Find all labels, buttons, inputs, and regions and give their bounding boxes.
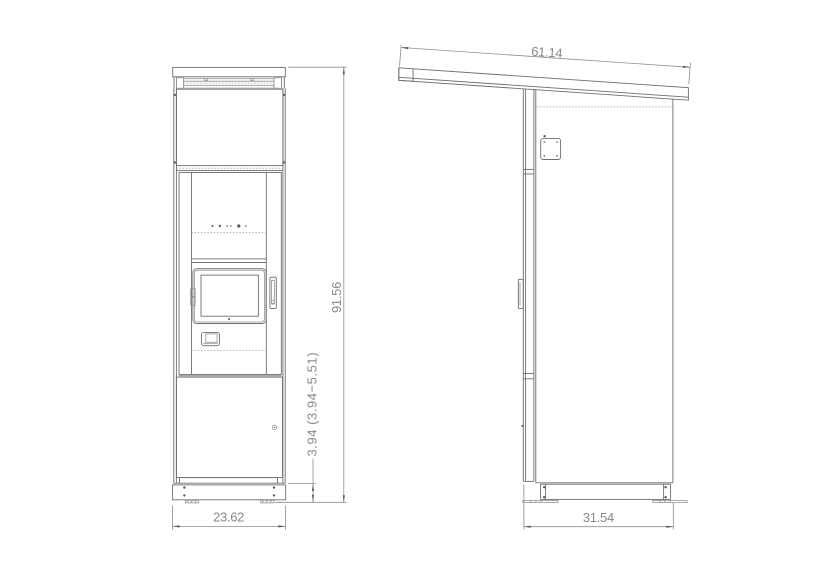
svg-text:61.14: 61.14 (531, 44, 563, 61)
svg-text:3.94 (3.94−5.51): 3.94 (3.94−5.51) (305, 352, 320, 457)
svg-text:23.62: 23.62 (213, 510, 244, 525)
svg-text:91.56: 91.56 (329, 282, 344, 313)
svg-text:31.54: 31.54 (583, 510, 614, 525)
